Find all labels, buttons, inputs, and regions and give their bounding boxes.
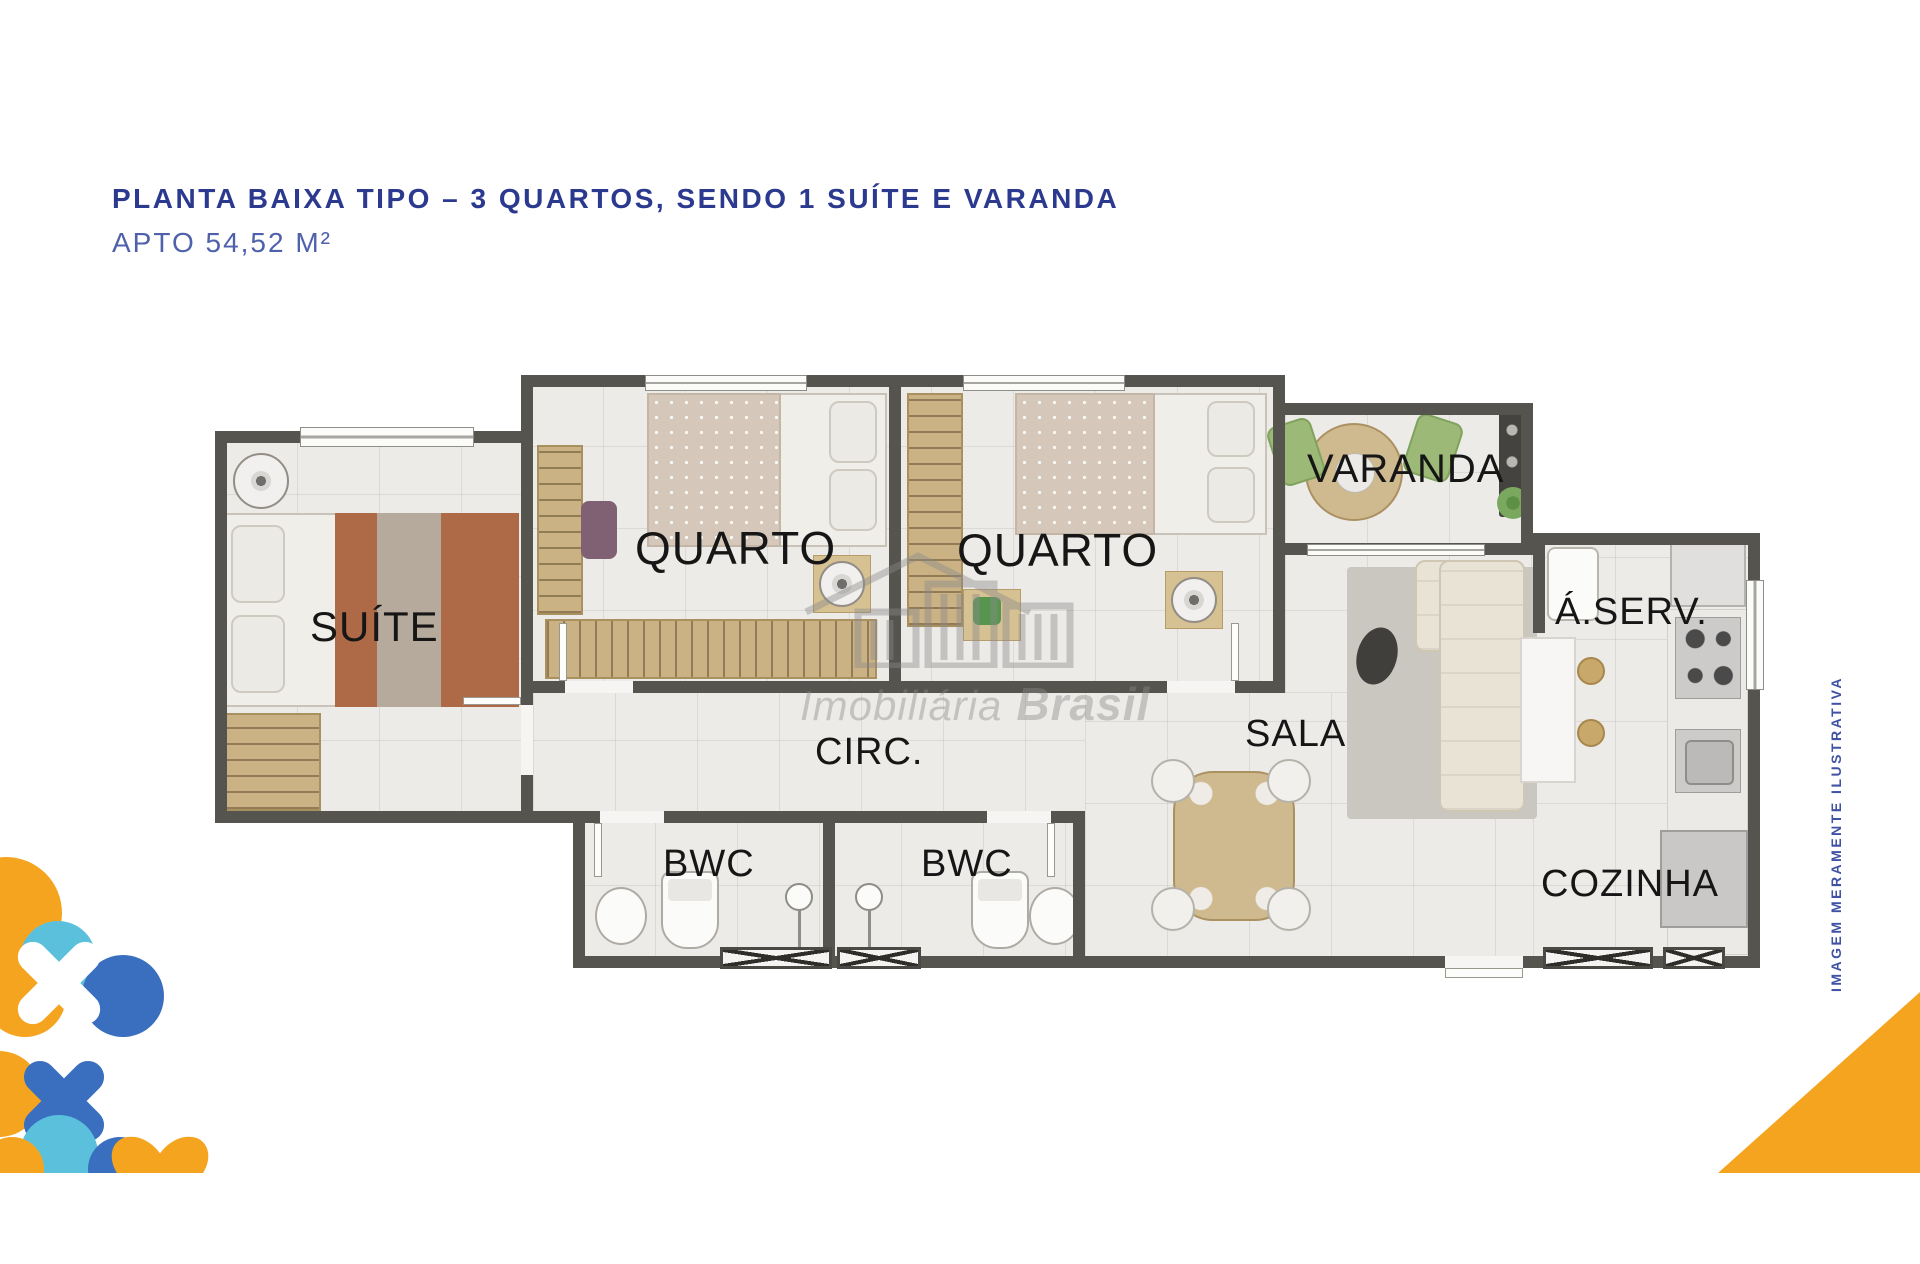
floor-plan: SUÍTEQUARTOQUARTOVARANDACIRC.SALABWCBWCÁ… <box>215 375 1765 995</box>
door-opening <box>565 681 633 693</box>
window-icon <box>963 375 1125 391</box>
pillow <box>1207 467 1255 523</box>
door-icon <box>559 623 567 681</box>
bar-stool <box>1577 719 1605 747</box>
dining-chair <box>1267 887 1311 931</box>
basculante-window-icon <box>1663 947 1725 969</box>
wall-segment <box>1533 533 1760 545</box>
sink-icon <box>595 887 647 945</box>
door-icon <box>1231 623 1239 681</box>
desk <box>537 445 583 615</box>
window-icon <box>300 427 474 447</box>
wall-segment <box>1273 403 1533 415</box>
pillow <box>231 525 285 603</box>
room-label-bwc1: BWC <box>663 843 755 886</box>
door-opening <box>987 811 1051 823</box>
room-label-suite: SUÍTE <box>310 603 439 651</box>
room-label-varanda: VARANDA <box>1307 447 1504 492</box>
pillow <box>231 615 285 693</box>
wall-segment <box>521 375 1285 387</box>
pillow <box>829 469 877 531</box>
decorative-pattern <box>0 845 230 1173</box>
disclaimer-vertical-text: IMAGEM MERAMENTE ILUSTRATIVA <box>1828 672 1858 992</box>
dining-chair <box>1151 887 1195 931</box>
wall-segment <box>215 431 227 823</box>
desk-chair <box>973 597 1001 625</box>
sofa <box>1439 560 1525 812</box>
wall-segment <box>823 823 835 956</box>
bar-stool <box>1577 657 1605 685</box>
sink-icon <box>1675 729 1741 793</box>
door-opening <box>600 811 664 823</box>
wardrobe <box>545 619 877 679</box>
door-icon <box>463 697 521 705</box>
door-opening <box>521 705 533 775</box>
basculante-window-icon <box>837 947 921 969</box>
ceiling-fan-icon <box>1171 577 1217 623</box>
bed-duvet <box>1015 393 1155 535</box>
room-label-bwc2: BWC <box>921 843 1013 886</box>
door-icon <box>594 823 602 877</box>
window-icon <box>1307 544 1485 556</box>
window-icon <box>1746 580 1764 690</box>
room-label-sala: SALA <box>1245 713 1346 756</box>
wall-segment <box>889 387 901 693</box>
pillow <box>829 401 877 463</box>
basculante-window-icon <box>720 947 832 969</box>
dining-chair <box>1151 759 1195 803</box>
page-title: PLANTA BAIXA TIPO – 3 QUARTOS, SENDO 1 S… <box>112 183 1119 215</box>
page: PLANTA BAIXA TIPO – 3 QUARTOS, SENDO 1 S… <box>0 0 1920 1264</box>
wall-segment <box>573 811 585 968</box>
wall-segment <box>1521 403 1533 547</box>
door-opening <box>1445 956 1523 968</box>
page-subtitle: APTO 54,52 M² <box>112 227 332 259</box>
suite-wardrobe <box>223 713 321 811</box>
door-opening <box>1167 681 1235 693</box>
wall-segment <box>215 811 585 823</box>
shower-icon <box>855 883 883 911</box>
decorative-triangle <box>1718 992 1920 1173</box>
door-icon <box>1047 823 1055 877</box>
room-label-aserv: Á.SERV. <box>1555 591 1708 634</box>
ceiling-fan-icon <box>233 453 289 509</box>
wall-segment <box>1533 533 1545 633</box>
wall-segment <box>1273 387 1285 693</box>
basculante-window-icon <box>1543 947 1653 969</box>
wall-segment <box>1073 811 1085 968</box>
kitchen-island <box>1520 637 1576 783</box>
window-icon <box>645 375 807 391</box>
wardrobe <box>907 393 963 627</box>
room-label-cozinha: COZINHA <box>1541 863 1719 906</box>
pillow <box>1207 401 1255 457</box>
room-label-quarto2: QUARTO <box>957 523 1158 577</box>
door-icon <box>1445 968 1523 978</box>
room-label-circ: CIRC. <box>815 731 923 774</box>
room-label-quarto1: QUARTO <box>635 521 836 575</box>
shower-icon <box>785 883 813 911</box>
dining-chair <box>1267 759 1311 803</box>
desk-chair <box>581 501 617 559</box>
